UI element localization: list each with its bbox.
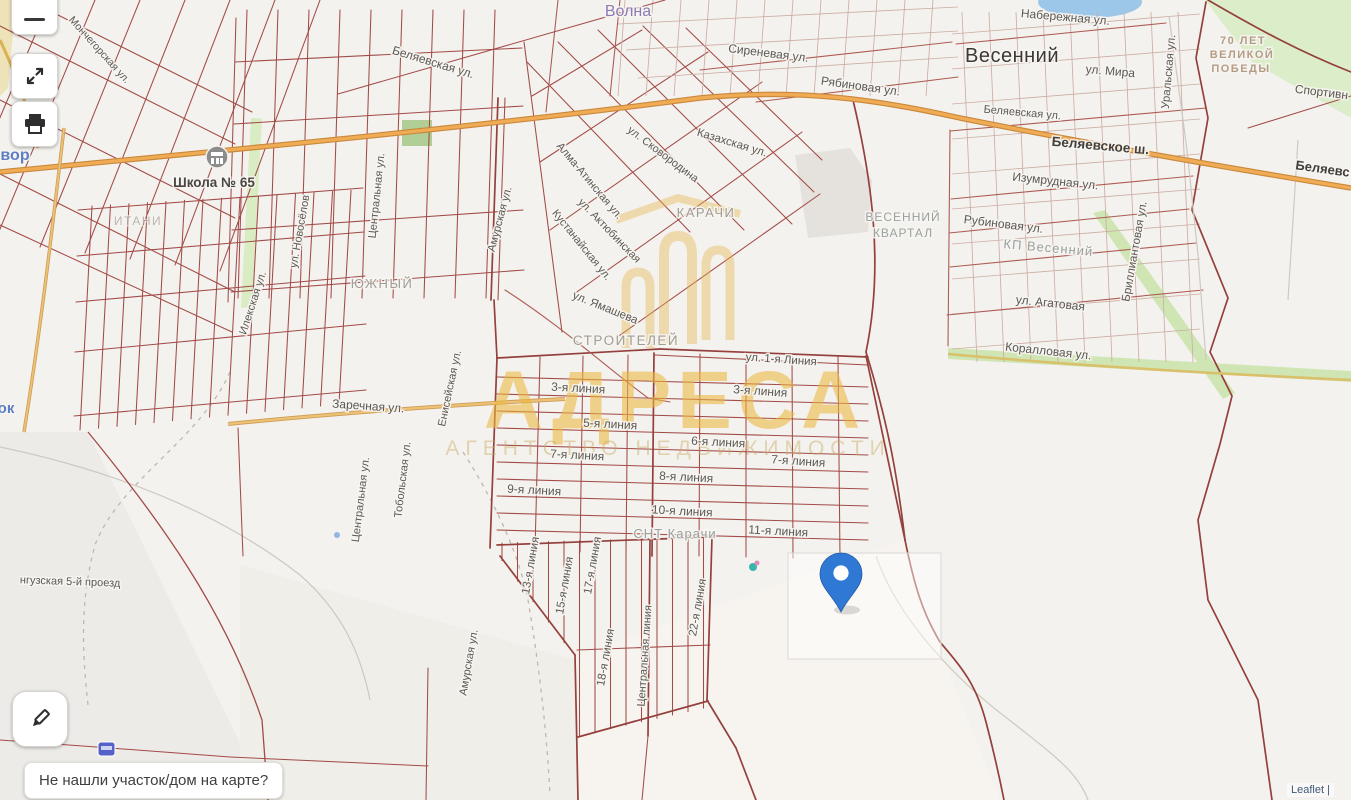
eniseyskaya-label: Енисейская ул.	[436, 349, 464, 428]
yuzhny-label: ЮЖНЫЙ	[351, 276, 414, 291]
vesenniy-label: Весенний	[965, 45, 1059, 67]
liniya-5-label: 5-я линия	[583, 416, 638, 433]
liniya-7a-label: 7-я линия	[550, 447, 605, 464]
vesenniy-kvartal-1-label: ВЕСЕННИЙ	[865, 209, 940, 224]
pobedy-1-label: 70 ЛЕТ	[1220, 35, 1266, 47]
school-icon	[206, 146, 228, 168]
fullscreen-button[interactable]	[11, 53, 58, 99]
map-canvas[interactable]: АДРЕСА АГЕНТСТВО НЕДВИЖИМОСТИ ВолнаСирен…	[0, 0, 1351, 800]
liniya-7b-label: 7-я линия	[771, 452, 826, 470]
liniya-3a-label: 3-я линия	[551, 380, 606, 397]
expand-icon	[24, 65, 46, 87]
kazakhskaya-label: Казахская ул.	[695, 127, 768, 160]
selected-parcel-highlight	[788, 553, 941, 659]
pobedy-2-label: ВЕЛИКОЙ	[1210, 48, 1275, 61]
zoom-out-button[interactable]	[11, 0, 58, 35]
liniya-8-label: 8-я линия	[659, 469, 714, 486]
ul-mira-label: ул. Мира	[1085, 62, 1136, 80]
rubinovaya-label: Рубиновая ул.	[963, 212, 1044, 236]
map-feedback-bar[interactable]: Не нашли участок/дом на карте?	[24, 762, 283, 799]
liniya-6-label: 6-я линия	[691, 434, 746, 451]
agatovaya-label: ул. Агатовая	[1015, 292, 1085, 313]
volna-label: Волна	[605, 3, 651, 20]
water-poi-dot	[334, 532, 340, 538]
vesenniy-kvartal-2-label: КВАРТАЛ	[873, 226, 933, 240]
map-viewport[interactable]: АДРЕСА АГЕНТСТВО НЕДВИЖИМОСТИ ВолнаСирен…	[0, 0, 1351, 800]
leaflet-attribution-link[interactable]: Leaflet |	[1287, 783, 1334, 797]
shkola-label: Школа № 65	[173, 175, 255, 190]
liniya-15-label: 15-я линия	[554, 556, 576, 615]
liniya-17-label: 17-я линия	[582, 536, 604, 595]
snt-karachi-label: СНТ Карачи	[633, 526, 716, 541]
draw-button[interactable]	[12, 691, 68, 747]
shop-poi-icon	[749, 561, 760, 572]
vor-label: вор	[0, 147, 29, 164]
uralskaya-label: Уральская ул.	[1160, 34, 1178, 109]
centralnaya-bottom-label: Центральная ул.	[350, 456, 372, 543]
minus-icon	[24, 18, 45, 21]
novosyolov-label: ул. Новосёлов	[288, 194, 313, 269]
belyaev-cut-label: Беляевс	[1295, 157, 1351, 179]
centralnaya-top-label: Центральная ул.	[367, 152, 388, 238]
belyaevskaya-right-label: Беляевская ул.	[983, 104, 1061, 123]
belyaevskoe-sh-label: Беляевское ш.	[1051, 134, 1150, 157]
monchegorskaya-label: Мончегорская ул.	[66, 14, 132, 86]
watermark-title: АДРЕСА	[484, 355, 866, 446]
ok-label: ок	[0, 400, 15, 417]
pobedy-3-label: ПОБЕДЫ	[1211, 63, 1270, 75]
sirenevaya-label: Сиреневая ул.	[728, 41, 810, 65]
liniya-9-label: 9-я линия	[507, 482, 562, 499]
printer-icon	[23, 113, 47, 135]
watermark: АДРЕСА АГЕНТСТВО НЕДВИЖИМОСТИ	[445, 198, 890, 460]
transit-stop-icon	[98, 742, 115, 756]
karachi-label: КАРАЧИ	[677, 205, 736, 220]
pencil-icon	[27, 706, 53, 732]
tobolskaya-label: Тобольская ул.	[392, 441, 413, 519]
stroiteley-label: СТРОИТЕЛЕЙ	[573, 333, 679, 348]
kp-vesenniy-label: КП Весенний	[1003, 236, 1094, 259]
print-button[interactable]	[11, 101, 58, 147]
itani-label: ИТАНИ	[114, 214, 162, 228]
parcel-grid-karachi	[524, 26, 822, 338]
